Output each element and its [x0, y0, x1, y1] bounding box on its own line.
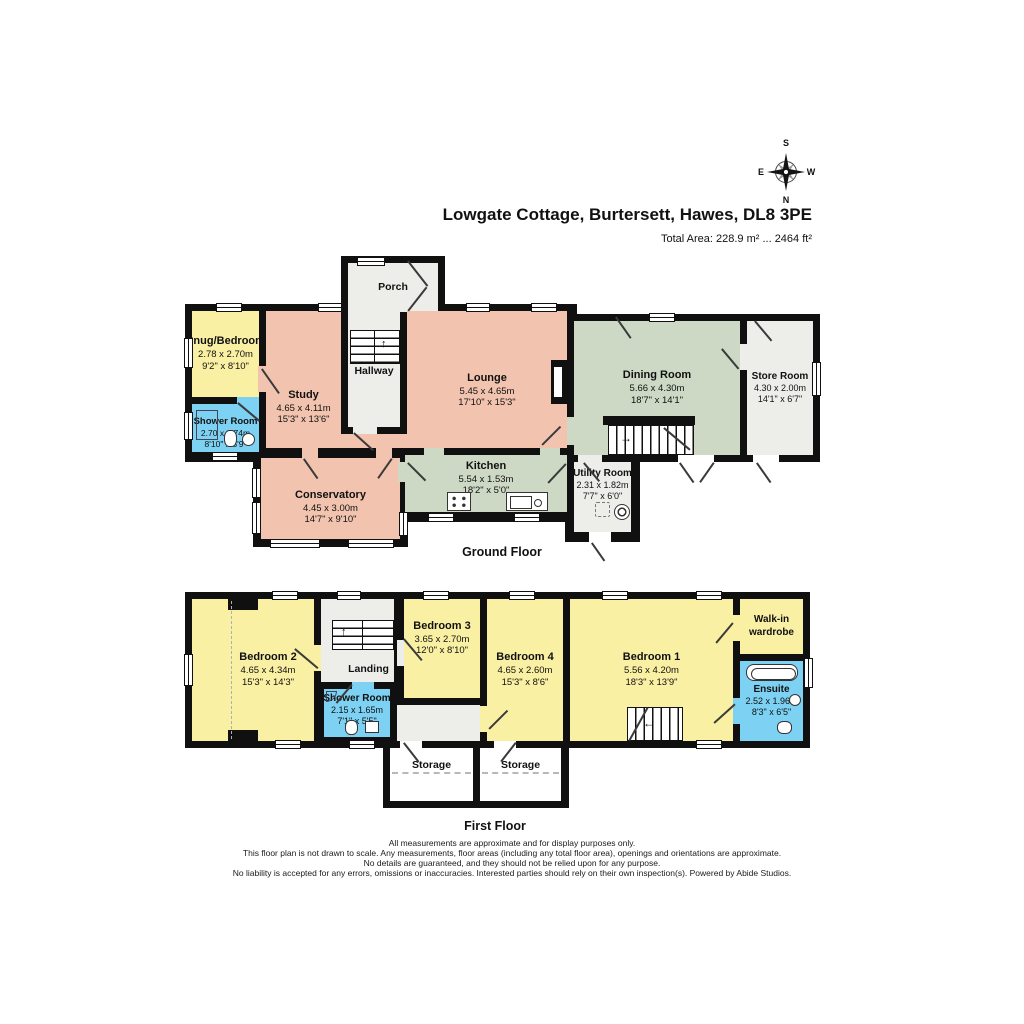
- room-name: Bedroom 3: [413, 620, 470, 634]
- room-dim-imperial: 17'10" x 15'3": [458, 397, 515, 409]
- room-dim-imperial: 15'3" x 8'6": [502, 677, 549, 689]
- eaves-line: [231, 601, 232, 739]
- room-hallway: Hallway: [348, 311, 400, 427]
- room-dim-imperial: 14'7" x 9'10": [304, 514, 356, 526]
- stairs-right-arrow: →: [620, 432, 632, 444]
- room-dim-metric: 5.56 x 4.20m: [624, 665, 679, 677]
- window: [216, 303, 242, 312]
- room-name: Dining Room: [623, 369, 691, 383]
- room-name: Porch: [378, 281, 408, 294]
- window: [252, 502, 261, 534]
- room-dim-metric: 2.15 x 1.65m: [331, 705, 383, 716]
- doorway: [733, 698, 740, 724]
- room-dim-metric: 4.45 x 3.00m: [303, 503, 358, 515]
- stair-divider: [362, 620, 363, 650]
- room-dim-metric: 5.54 x 1.53m: [459, 474, 514, 486]
- eaves-line: [482, 772, 559, 774]
- washer-icon: [614, 504, 630, 520]
- exterior-door-opening: [678, 455, 714, 462]
- room-name: Store Room: [752, 371, 809, 384]
- room-dim-imperial: 15'3" x 13'6": [277, 414, 329, 426]
- room-lounge: Lounge 5.45 x 4.65m 17'10" x 15'3": [407, 311, 567, 448]
- disclaimer-line: No details are guaranteed, and they shou…: [7, 858, 1017, 868]
- window: [812, 362, 821, 396]
- compass-top-label: S: [752, 138, 820, 148]
- window: [348, 539, 394, 548]
- doorway: [398, 462, 405, 482]
- window: [184, 654, 193, 686]
- room-name: Landing: [348, 663, 389, 676]
- room-dim-metric: 4.30 x 2.00m: [754, 383, 806, 394]
- appliance-space-icon: [595, 502, 610, 517]
- room-bedroom-3: Bedroom 3 3.65 x 2.70m 12'0" x 8'10": [404, 599, 480, 698]
- room-name: Utility Room: [573, 468, 632, 481]
- stair-divider: [374, 330, 375, 364]
- room-name: Walk-in wardrobe: [744, 614, 800, 639]
- room-name: Hallway: [354, 365, 393, 378]
- ground-floor-label: Ground Floor: [402, 545, 602, 559]
- doorway: [376, 448, 392, 458]
- window: [270, 539, 320, 548]
- sink-icon: [789, 694, 801, 706]
- doorway: [578, 455, 602, 462]
- page-title: Lowgate Cottage, Burtersett, Hawes, DL8 …: [443, 205, 812, 225]
- disclaimer: All measurements are approximate and for…: [7, 838, 1017, 878]
- room-snug-bedroom: Snug/Bedroom 2.78 x 2.70m 9'2" x 8'10": [192, 311, 259, 397]
- window: [428, 513, 454, 522]
- window: [696, 740, 722, 749]
- room-name: Bedroom 1: [623, 651, 680, 665]
- window: [184, 412, 193, 440]
- doorway: [733, 615, 740, 641]
- first-floor-label: First Floor: [395, 819, 595, 833]
- room-dim-metric: 4.65 x 4.34m: [241, 665, 296, 677]
- room-dim-imperial: 18'7" x 14'1": [631, 395, 683, 407]
- room-store: Store Room 4.30 x 2.00m 14'1" x 6'7": [747, 321, 813, 455]
- doorway: [397, 640, 404, 666]
- room-name: Storage: [501, 759, 540, 772]
- room-dim-metric: 2.31 x 1.82m: [576, 480, 628, 491]
- floor-plan-page: S E W N Lowgate Cottage, Burtersett, Haw…: [0, 0, 1024, 1024]
- window: [649, 313, 675, 322]
- compass-bottom-label: N: [752, 195, 820, 205]
- doorway: [302, 448, 318, 458]
- room-utility: Utility Room 2.31 x 1.82m 7'7" x 6'0": [574, 462, 631, 532]
- doorway: [567, 417, 574, 445]
- room-dim-imperial: 14'1" x 6'7": [758, 394, 802, 405]
- doorway: [353, 427, 377, 434]
- doorway: [540, 448, 560, 455]
- room-dim-metric: 4.65 x 4.11m: [276, 403, 330, 415]
- room-dim-imperial: 18'3" x 13'9": [625, 677, 677, 689]
- sink-icon: [365, 721, 379, 733]
- room-name: Ensuite: [753, 684, 789, 697]
- exterior-door-opening: [589, 532, 611, 542]
- compass-right-label: W: [804, 167, 818, 177]
- total-area-text: Total Area: 228.9 m² ... 2464 ft²: [661, 233, 812, 245]
- room-name: Bedroom 4: [496, 651, 553, 665]
- room-dim-imperial: 12'0" x 8'10": [416, 645, 468, 657]
- door-leaf: [756, 462, 771, 483]
- room-walk-in-wardrobe: Walk-in wardrobe: [740, 599, 803, 654]
- room-dim-metric: 2.78 x 2.70m: [198, 349, 253, 361]
- sink-basin: [510, 496, 532, 509]
- kitchen-sink-icon: [506, 492, 548, 511]
- room-dim-imperial: 7'7" x 6'0": [583, 491, 622, 502]
- room-dim-metric: 5.45 x 4.65m: [460, 386, 515, 398]
- stairs-left-arrow: ←: [643, 717, 655, 729]
- landing-corridor: [394, 705, 480, 741]
- compass-icon: S E W N: [752, 138, 820, 206]
- room-dim-metric: 3.65 x 2.70m: [415, 634, 470, 646]
- sink-drain: [534, 499, 542, 507]
- room-name: Study: [288, 389, 319, 403]
- room-dim-metric: 4.65 x 2.60m: [498, 665, 553, 677]
- doorway: [740, 344, 747, 370]
- window: [804, 658, 813, 688]
- toilet-icon: [345, 720, 358, 735]
- window: [318, 303, 342, 312]
- window: [423, 591, 449, 600]
- disclaimer-line: All measurements are approximate and for…: [7, 838, 1017, 848]
- chimney-breast: [228, 730, 258, 741]
- bedroom1-stairs: [627, 707, 683, 741]
- room-name: Kitchen: [466, 460, 506, 474]
- room-name: Conservatory: [295, 489, 366, 503]
- toilet-icon: [777, 721, 792, 734]
- window: [252, 468, 261, 498]
- window: [514, 513, 540, 522]
- room-storage-1: Storage: [390, 748, 473, 801]
- hallway-stairs: [350, 330, 400, 364]
- sink-icon: [242, 433, 255, 446]
- fireplace-opening: [554, 367, 562, 397]
- stairs-up-arrow: ↑: [341, 627, 347, 638]
- bathtub-inner: [751, 668, 796, 680]
- room-bedroom-2: Bedroom 2 4.65 x 4.34m 15'3" x 14'3": [192, 599, 314, 741]
- bathtub-icon: [746, 664, 798, 681]
- stove-icon: [447, 492, 471, 511]
- exterior-door-opening: [753, 455, 779, 462]
- room-conservatory: Conservatory 4.45 x 3.00m 14'7" x 9'10": [261, 458, 400, 539]
- doorway: [480, 706, 487, 732]
- door-leaf: [700, 462, 715, 483]
- window: [696, 591, 722, 600]
- window: [349, 740, 375, 749]
- disclaimer-line: No liability is accepted for any errors,…: [7, 868, 1017, 878]
- stair-wall: [603, 416, 695, 425]
- room-name: Bedroom 2: [239, 651, 296, 665]
- room-dim-imperial: 9'2" x 8'10": [202, 361, 249, 373]
- toilet-icon: [224, 430, 237, 447]
- window: [357, 257, 385, 266]
- stairs-up-arrow: ↑: [381, 339, 387, 350]
- window: [531, 303, 557, 312]
- study-lounge-passage: [341, 434, 407, 448]
- room-storage-2: Storage: [480, 748, 561, 801]
- room-name: Snug/Bedroom: [186, 335, 265, 349]
- door-leaf: [679, 462, 694, 483]
- window: [184, 338, 193, 368]
- doorway: [352, 682, 374, 689]
- room-dim-metric: 5.66 x 4.30m: [630, 383, 685, 395]
- compass-star: [766, 152, 806, 192]
- window: [272, 591, 298, 600]
- window: [275, 740, 301, 749]
- eaves-line: [392, 772, 471, 774]
- doorway: [424, 448, 444, 455]
- window: [466, 303, 490, 312]
- window: [602, 591, 628, 600]
- chimney-breast: [228, 599, 258, 610]
- window: [212, 452, 238, 461]
- room-name: Lounge: [467, 372, 507, 386]
- room-dim-imperial: 8'3" x 6'5": [752, 707, 791, 718]
- window: [509, 591, 535, 600]
- window: [399, 512, 408, 536]
- window: [337, 591, 361, 600]
- disclaimer-line: This floor plan is not drawn to scale. A…: [7, 848, 1017, 858]
- shower-tray-icon: [196, 410, 218, 440]
- room-dim-imperial: 15'3" x 14'3": [242, 677, 294, 689]
- room-study: Study 4.65 x 4.11m 15'3" x 13'6": [266, 311, 341, 448]
